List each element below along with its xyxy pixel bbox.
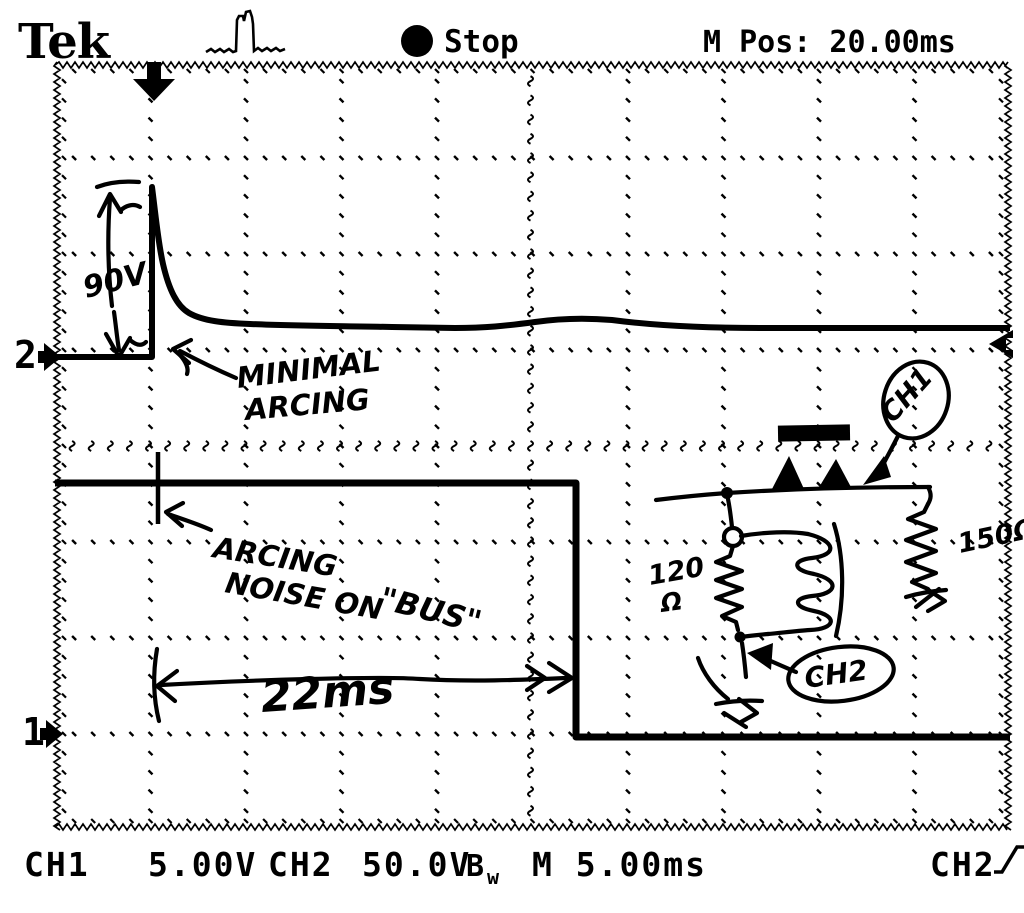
annotation-22ms-measure: 22ms: [154, 649, 572, 723]
acquisition-status-label: Stop: [444, 24, 519, 60]
readout-ch2-label: CH2: [268, 845, 334, 884]
readout-ch1-scale: 5.00V: [148, 845, 257, 884]
ch2-marker-label: 2: [14, 333, 37, 377]
oscilloscope-screen: Tek Stop M Pos: 20.00ms 2 1 90V MINIMAL …: [0, 0, 1024, 913]
readout-timebase: M 5.00ms: [532, 845, 707, 884]
horizontal-position-readout: M Pos: 20.00ms: [703, 25, 956, 60]
resistor-150-label: 150Ω: [955, 513, 1024, 560]
readout-bar: CH1 5.00V CH2 50.0V B w M 5.00ms CH2: [24, 845, 1024, 889]
coil-core-arc: [834, 524, 842, 636]
circuit-top-wire: [656, 487, 930, 500]
trigger-pulse-icon: [206, 11, 285, 52]
scope-display: Tek Stop M Pos: 20.00ms 2 1 90V MINIMAL …: [0, 0, 1024, 913]
readout-ch2-scale: 50.0V: [362, 845, 471, 884]
time-measure-label: 22ms: [259, 663, 396, 723]
ch2-balloon-label: CH2: [802, 653, 869, 695]
arcing-noise-line3: "BUS": [376, 581, 485, 641]
stop-icon: [401, 25, 433, 57]
voltage-measure-label: 90V: [79, 255, 153, 305]
annotation-minimal-arcing: MINIMAL ARCING: [173, 340, 382, 427]
tek-logo: Tek: [18, 14, 112, 70]
coil-top-lead: [741, 532, 808, 536]
readout-trigger-source: CH2: [930, 845, 996, 884]
bw-limit-badge-sub: w: [487, 865, 500, 889]
contact-triangle-right-icon: [818, 459, 852, 489]
marker-highlight-bar: [778, 424, 850, 441]
contact-triangle-left-icon: [772, 456, 804, 489]
trigger-slope-rising-edge-icon: [994, 847, 1024, 872]
graticule-grid: [54, 62, 1011, 830]
bw-limit-badge: B: [466, 849, 484, 884]
resistor-120: [716, 546, 742, 630]
ch2-arrowhead-icon: [747, 643, 773, 670]
resistor-150: [906, 504, 936, 589]
annotation-90v-measure: 90V: [79, 182, 153, 357]
relay-coil: [768, 534, 833, 634]
trigger-position-marker: [133, 62, 175, 101]
resistor-120-unit-label: Ω: [657, 586, 684, 618]
readout-ch1-label: CH1: [24, 845, 90, 884]
circuit-junction-dot-bottom: [735, 632, 746, 643]
